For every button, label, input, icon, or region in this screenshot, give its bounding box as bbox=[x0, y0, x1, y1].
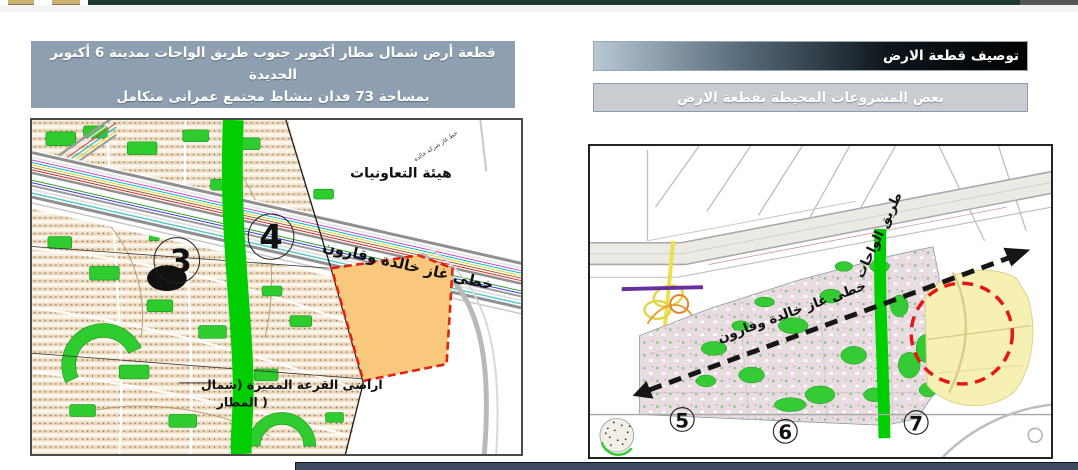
section-bar-land-description-label: توصيف قطعة الارض bbox=[883, 48, 1019, 64]
lottery-lands-label-line2: المطار ) bbox=[216, 396, 268, 410]
section-bar-surrounding-projects: بعض المشروعات المحيطة بقطعة الارض bbox=[593, 83, 1028, 112]
village-cluster bbox=[600, 418, 634, 454]
top-rule-shadow-band bbox=[0, 5, 1078, 12]
context-area-map-drawing: خطى غاز خالدة وقارون طريق الواحات 5 6 7 bbox=[590, 146, 1051, 457]
parcel-title-line2: بمساحة 73 فدان بنشاط مجتمع عمرانى متكامل bbox=[31, 86, 515, 108]
context-area-map: خطى غاز خالدة وقارون طريق الواحات 5 6 7 bbox=[588, 144, 1053, 459]
district-4-number: 4 bbox=[259, 218, 282, 257]
green-axis-road bbox=[880, 229, 884, 438]
district-7-number: 7 bbox=[909, 412, 923, 435]
roundabout bbox=[1028, 428, 1042, 442]
metro-line-segment bbox=[622, 287, 703, 289]
cooperatives-authority-label: هيئة التعاونيات bbox=[350, 165, 452, 181]
district-6-number: 6 bbox=[778, 421, 792, 444]
detailed-parcel-map-drawing: 3 4 هيئة التعاونيات خط غاز شركة خالدة خط… bbox=[32, 120, 521, 454]
slide: قطعة أرض شمال مطار أكتوبر جنوب طريق الوا… bbox=[0, 0, 1078, 470]
gas-company-line-label: خط غاز شركة خالدة bbox=[413, 130, 460, 164]
lottery-lands-label-line1: اراضى القرعة المميزة (شمال bbox=[201, 378, 383, 392]
parcel-title-box: قطعة أرض شمال مطار أكتوبر جنوب طريق الوا… bbox=[31, 41, 515, 108]
side-road-top-right bbox=[480, 120, 486, 171]
parcel-title-line1: قطعة أرض شمال مطار أكتوبر جنوب طريق الوا… bbox=[31, 42, 515, 86]
section-bar-surrounding-projects-label: بعض المشروعات المحيطة بقطعة الارض bbox=[677, 90, 944, 106]
district-3-number: 3 bbox=[170, 244, 192, 280]
detailed-parcel-map: 3 4 هيئة التعاونيات خط غاز شركة خالدة خط… bbox=[30, 118, 523, 456]
section-bar-land-description: توصيف قطعة الارض bbox=[593, 41, 1028, 71]
district-5-number: 5 bbox=[675, 409, 689, 432]
arrowhead-right bbox=[1003, 248, 1030, 267]
bottom-divider-bar bbox=[295, 462, 1078, 470]
